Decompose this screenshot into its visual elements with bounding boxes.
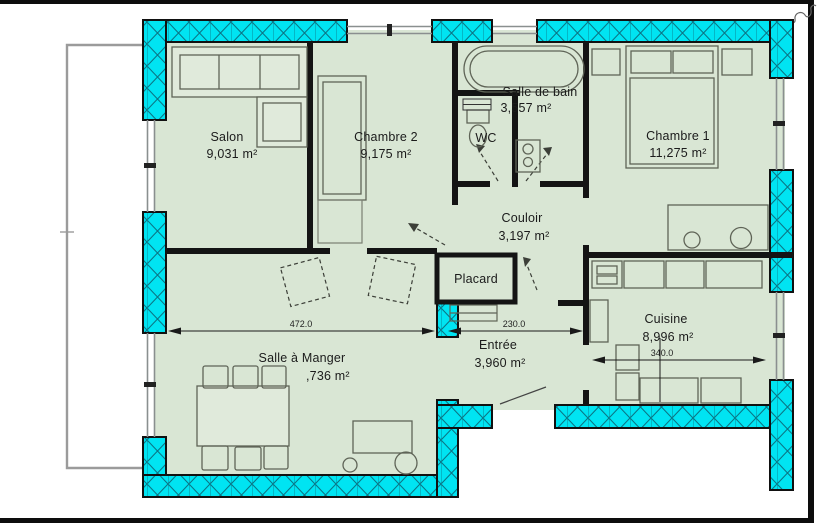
room-label-salle-a-manger: Salle à Manger	[259, 351, 346, 365]
room-label-chambre1: Chambre 1	[646, 129, 710, 143]
room-label-chambre2: Chambre 2	[354, 130, 418, 144]
floor-plan-canvas: 472.0 230.0 340.0 Salon 9,031 m² Chambre…	[0, 0, 840, 530]
room-area-salle-de-bain: 3,557 m²	[501, 101, 552, 115]
balcony-outline	[60, 45, 143, 468]
room-label-salle-de-bain: Salle de bain	[503, 85, 578, 99]
dim-label-dining-width: 472.0	[290, 319, 313, 329]
room-area-cuisine: 8,996 m²	[643, 330, 694, 344]
room-label-wc: WC	[475, 131, 496, 145]
room-label-entree: Entrée	[479, 338, 517, 352]
window-left-1	[144, 120, 156, 212]
dim-label-entry-width: 230.0	[503, 319, 526, 329]
room-area-chambre2: 9,175 m²	[361, 147, 412, 161]
room-label-couloir: Couloir	[502, 211, 543, 225]
window-left-2	[144, 333, 156, 437]
room-area-salon: 9,031 m²	[207, 147, 258, 161]
room-area-chambre1: 11,275 m²	[649, 146, 706, 160]
floor-plan-page: 472.0 230.0 340.0 Salon 9,031 m² Chambre…	[0, 0, 840, 530]
room-label-cuisine: Cuisine	[644, 312, 687, 326]
dim-label-kitchen-width: 340.0	[651, 348, 674, 358]
dining-table-icon	[197, 386, 289, 446]
room-area-salle-a-manger: ,736 m²	[306, 369, 350, 383]
room-label-placard: Placard	[454, 272, 498, 286]
room-label-salon: Salon	[211, 130, 244, 144]
room-area-couloir: 3,197 m²	[499, 229, 550, 243]
room-area-entree: 3,960 m²	[475, 356, 526, 370]
